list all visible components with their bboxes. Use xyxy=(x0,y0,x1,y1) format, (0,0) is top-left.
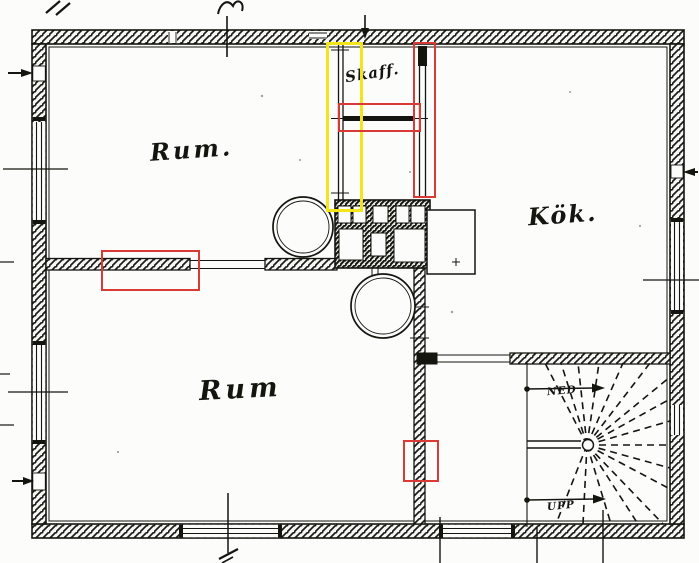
highlight-box-red-left-interior-wall xyxy=(101,250,200,291)
stair-handrail xyxy=(527,440,594,451)
room-label-bottom: Rum xyxy=(198,374,282,405)
right-arrow xyxy=(683,168,698,176)
room-label-top: Rum. xyxy=(149,135,234,165)
kitchen-label: Kök. xyxy=(527,201,598,230)
left-upper-arrow xyxy=(8,69,33,77)
floor-plan-canvas: Rum. Kök. Rum Skaff. NED UPP xyxy=(0,0,699,563)
left-lower-arrow xyxy=(12,477,34,485)
cutoff-letter-mark xyxy=(218,1,243,14)
stair-up-label: UPP xyxy=(547,500,576,513)
stove-circle-top xyxy=(273,197,333,257)
highlight-box-red-lower-interior-wall xyxy=(403,440,439,482)
stove-circle-bottom xyxy=(351,274,415,338)
kitchen-counter xyxy=(427,210,475,274)
highlight-box-red-pantry-shelf xyxy=(338,103,421,132)
stair-down-label: NED xyxy=(547,385,578,398)
